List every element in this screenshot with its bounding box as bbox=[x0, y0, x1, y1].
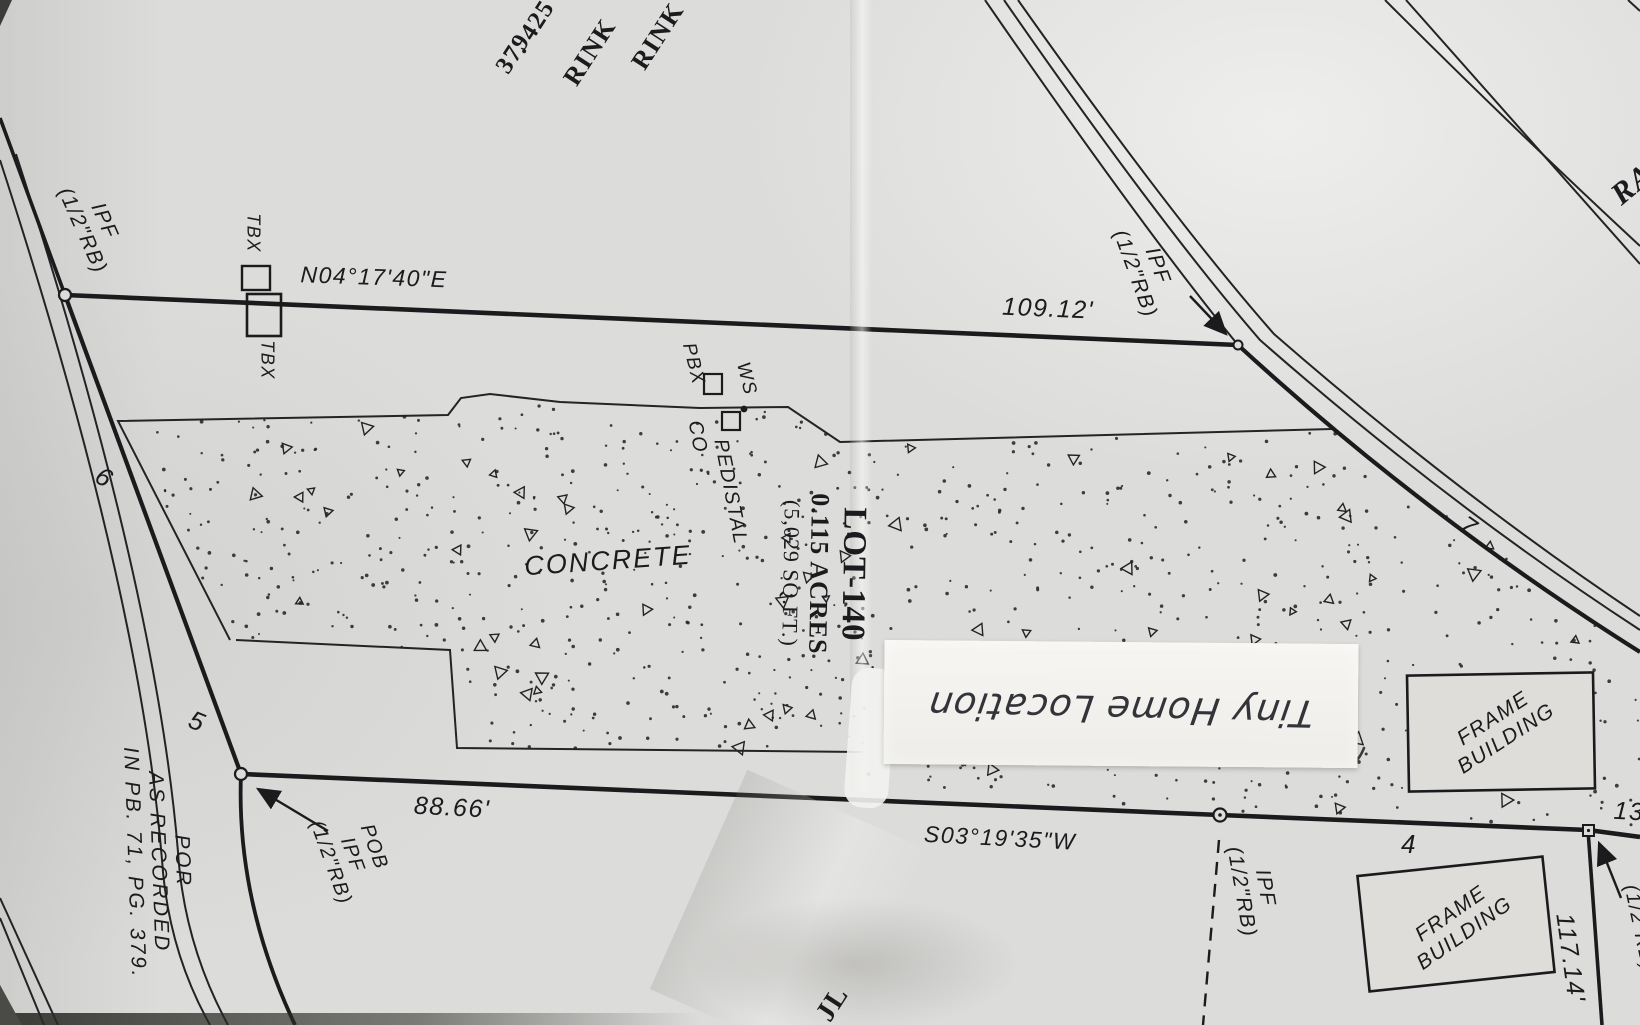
lot-line-curve-east bbox=[1238, 345, 1640, 652]
pob-point bbox=[235, 768, 247, 780]
distance-partial-13-label: 13 bbox=[1613, 797, 1640, 827]
ipf-point-top-left bbox=[59, 289, 71, 301]
ipf-arrow-top-right bbox=[1190, 296, 1226, 334]
ipf-point-bottom-dot bbox=[1218, 813, 1222, 817]
lot-line-117 bbox=[1588, 830, 1602, 1025]
tbx-square-lower bbox=[247, 294, 281, 336]
ws-point bbox=[741, 406, 748, 413]
por-label: POR AS RECORDED IN PB. 71, PG. 379. bbox=[118, 745, 198, 979]
tbx-upper-label: TBX bbox=[243, 213, 264, 253]
lot-label: LOT-140 0.115 ACRES (5,029 SQ.FT.) bbox=[777, 493, 873, 656]
tbx-square-upper bbox=[242, 266, 270, 290]
lot-line-road-upper bbox=[0, 118, 65, 295]
curve-road-corner-sliver bbox=[1628, 0, 1640, 11]
marker-4-label: 4 bbox=[1401, 830, 1417, 860]
curve-road-mid bbox=[1004, 0, 1640, 630]
handwritten-note-text: Tiny Home Location bbox=[925, 683, 1317, 735]
dashed-tie-line bbox=[1203, 840, 1219, 1025]
tbx-lower-label: TBX bbox=[257, 340, 278, 380]
distance-88-label: 88.66' bbox=[413, 792, 491, 825]
lot-line-road-lower bbox=[241, 774, 295, 1025]
rb-arrow-bottom-right bbox=[1599, 843, 1621, 898]
lot-sqft: (5,029 SQ.FT.) bbox=[777, 493, 805, 655]
concrete-boundary-bottom bbox=[236, 640, 862, 752]
distance-109-label: 109.12' bbox=[1002, 293, 1095, 326]
lot-name: LOT-140 bbox=[832, 494, 873, 656]
corner-point-se-dot bbox=[1587, 829, 1590, 832]
handwritten-note-strip: Tiny Home Location bbox=[883, 640, 1358, 768]
street-line-2 bbox=[0, 918, 44, 1025]
lot-line-west bbox=[65, 295, 241, 774]
ipf-point-top-right bbox=[1234, 341, 1243, 350]
curve-road-far-1 bbox=[1385, 0, 1640, 246]
curve-road-outer bbox=[1018, 0, 1640, 616]
street-line-1 bbox=[0, 898, 58, 1025]
curve-road-far-2 bbox=[1406, 0, 1640, 264]
bearing-north-label: N04°17'40"E bbox=[300, 261, 448, 293]
lot-acres: 0.115 ACRES bbox=[802, 493, 835, 655]
plat-photo: RINK RINK . 425 379 TBX TBX N04°17'40"E … bbox=[0, 0, 1640, 1025]
pedestal-square bbox=[722, 412, 740, 430]
